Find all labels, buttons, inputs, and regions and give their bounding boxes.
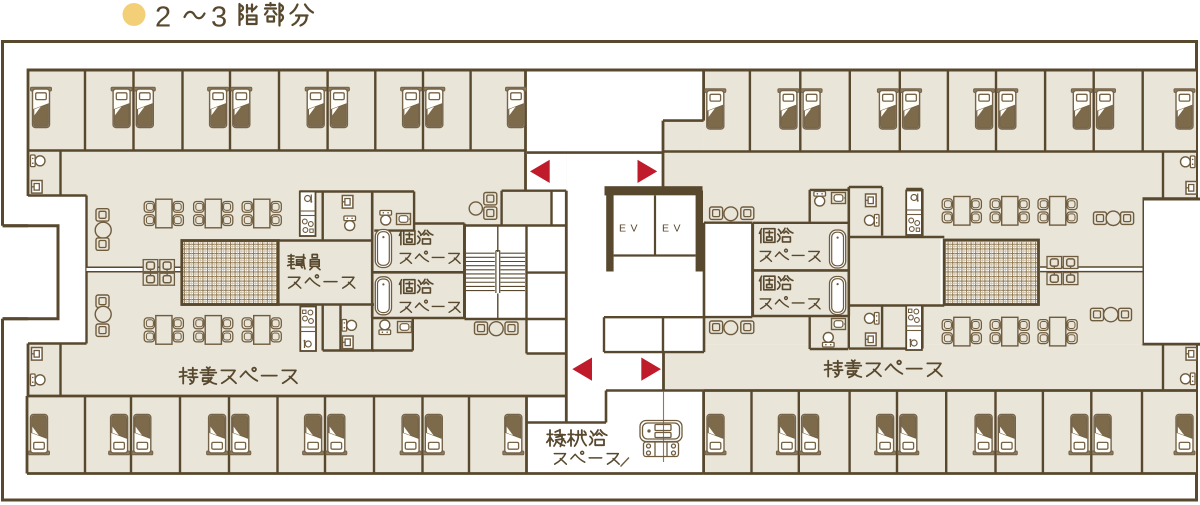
svg-text:3: 3 [211,2,227,34]
svg-text:2: 2 [155,2,171,34]
svg-text:EV: EV [619,223,642,235]
svg-text:EV: EV [662,223,685,235]
